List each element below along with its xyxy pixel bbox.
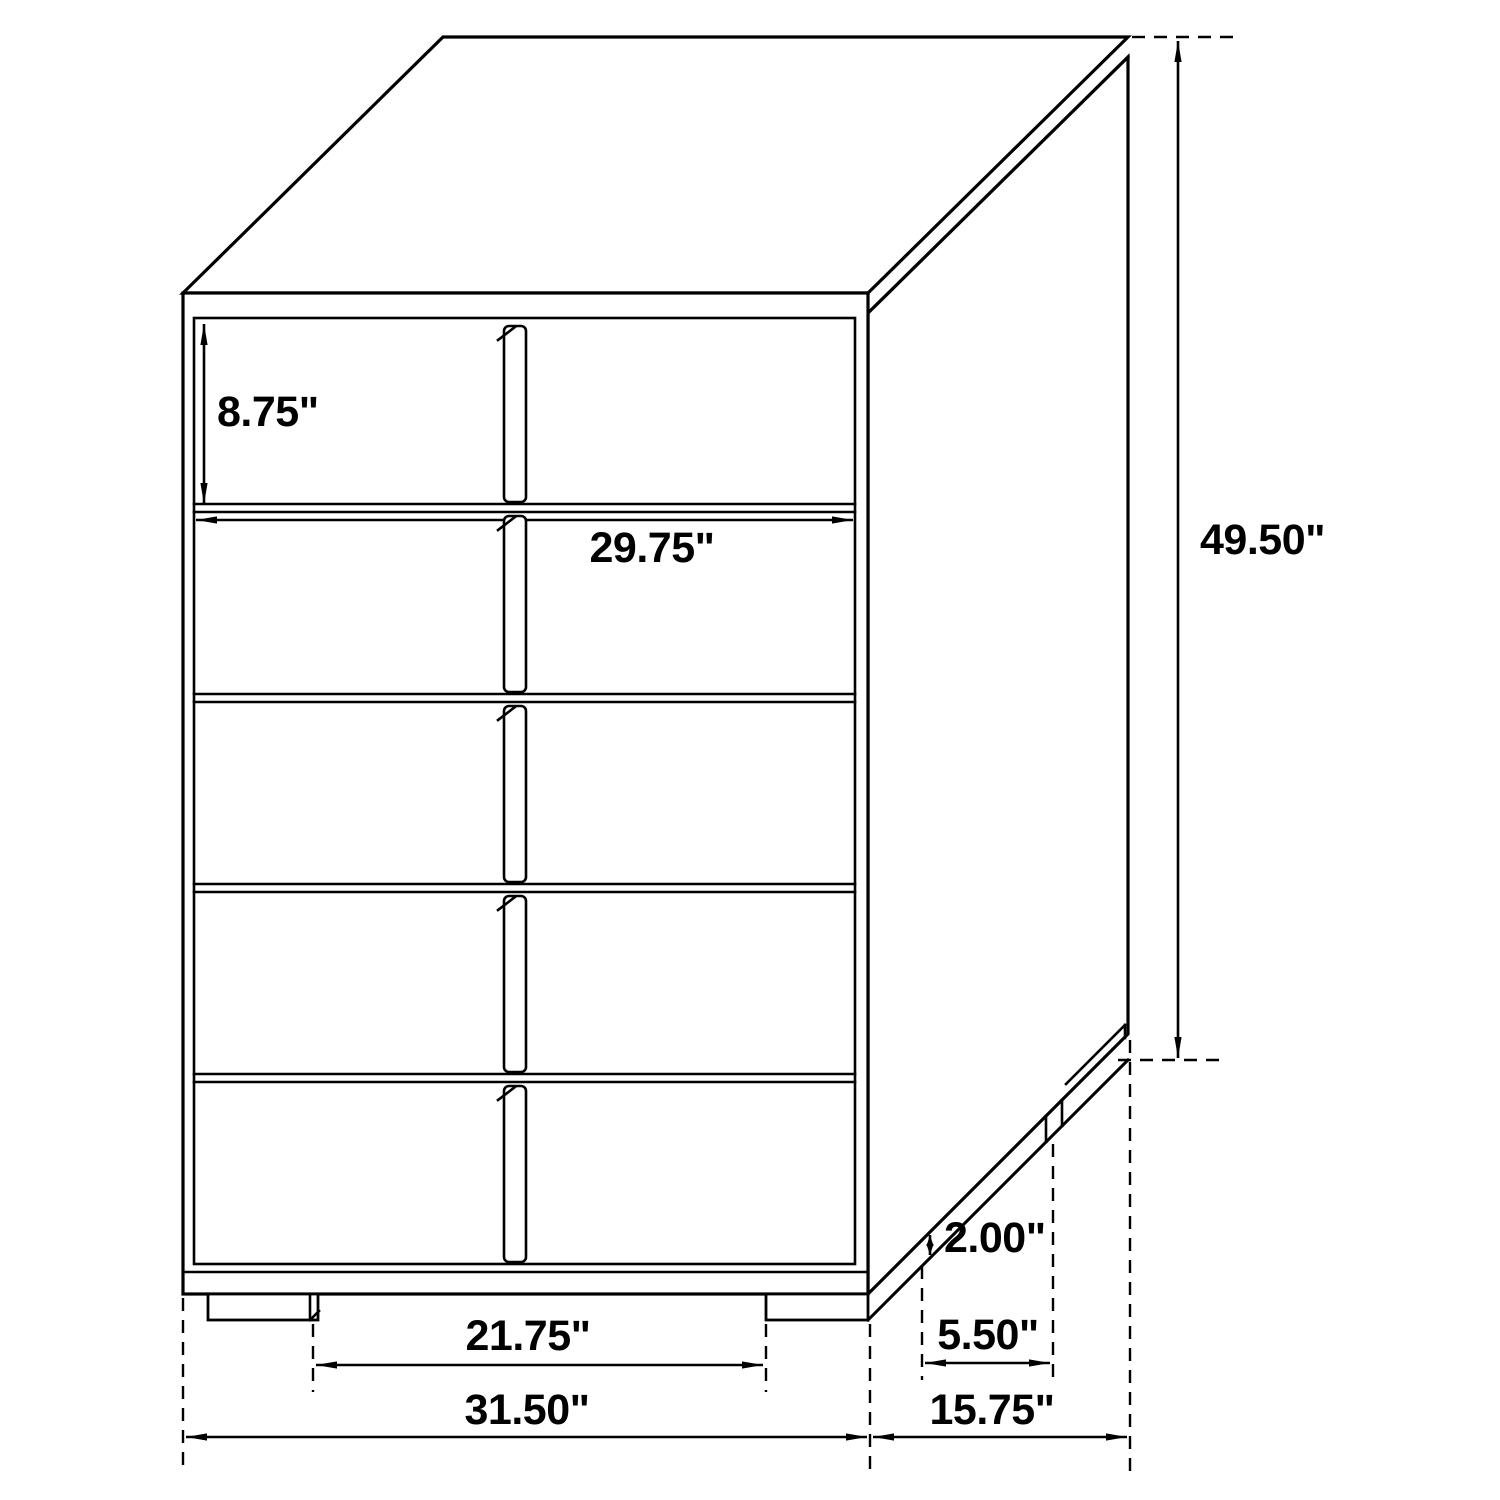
dimension-label-overall-height: 49.50" bbox=[1200, 516, 1325, 564]
chest-drawing bbox=[183, 37, 1128, 1320]
front-foot-left bbox=[208, 1294, 318, 1320]
dimension-label-foot-height: 2.00" bbox=[944, 1214, 1046, 1262]
dimension-label-drawer-width: 29.75" bbox=[590, 524, 715, 572]
drawer-handle-4 bbox=[504, 896, 526, 1072]
drawer-handle-5 bbox=[504, 1086, 526, 1262]
front-foot-right bbox=[766, 1294, 868, 1320]
furniture-dimension-diagram: 8.75" 29.75" 49.50" 2.00" 5.50" 21.75" 3… bbox=[0, 0, 1500, 1500]
dimension-label-side-foot-span: 5.50" bbox=[937, 1311, 1039, 1359]
drawer-handle-2 bbox=[504, 516, 526, 692]
drawer-handle-1 bbox=[504, 326, 526, 502]
dimension-label-drawer-height: 8.75" bbox=[217, 388, 319, 436]
dimension-label-overall-depth: 15.75" bbox=[930, 1386, 1055, 1434]
dimension-label-overall-width: 31.50" bbox=[465, 1386, 590, 1434]
dimension-label-front-foot-span: 21.75" bbox=[466, 1312, 591, 1360]
drawer-handle-3 bbox=[504, 706, 526, 882]
chest-dimension-drawing: 8.75" 29.75" 49.50" 2.00" 5.50" 21.75" 3… bbox=[0, 0, 1500, 1500]
